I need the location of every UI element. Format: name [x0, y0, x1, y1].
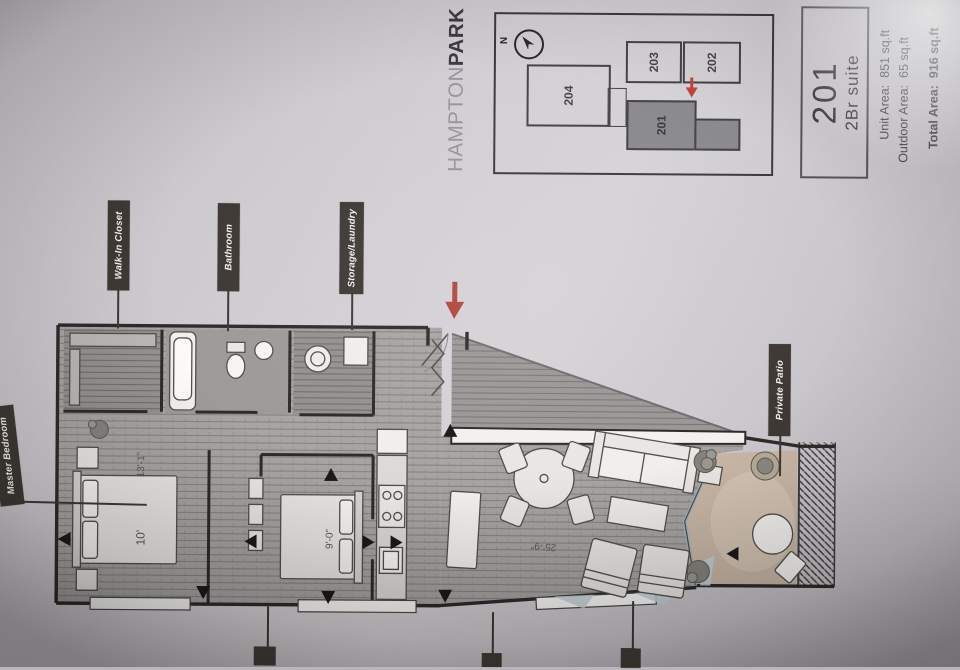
- master-bed-pillow: [83, 480, 98, 517]
- toilet: [227, 354, 245, 378]
- bedroom2-pillow: [340, 500, 353, 534]
- outdoor-area-row: Outdoor Area: 65 sq.ft: [894, 11, 914, 181]
- washer: [305, 346, 331, 372]
- lounge-chair: [637, 544, 690, 598]
- area-summary: Unit Area: 851 sq.ft Outdoor Area: 65 sq…: [875, 11, 954, 182]
- leader-cutoff-3: [632, 601, 634, 651]
- patio-table: [752, 514, 792, 554]
- cutoff-label-2: [482, 653, 502, 667]
- leader-private-patio: [779, 432, 781, 476]
- keyplan-entry-marker: [684, 75, 700, 101]
- dim-master-width: 13'-1": [136, 451, 147, 477]
- north-label: N: [499, 37, 510, 44]
- keyplan-unit-203: 203: [626, 41, 682, 83]
- closet-shelf: [70, 333, 156, 347]
- label-bathroom: Bathroom: [217, 203, 240, 291]
- leader-storage-laundry: [351, 292, 353, 330]
- dim-bedroom2-bed: 9'-0": [324, 529, 335, 549]
- nightstand: [77, 447, 98, 468]
- bedroom2-pillow: [339, 539, 352, 573]
- leader-walkin-closet: [117, 288, 119, 328]
- cutoff-label-3: [621, 648, 641, 668]
- brand-hampton: HAMPTON: [444, 66, 469, 172]
- north-compass-icon: [514, 29, 544, 59]
- label-walk-in-closet: Walk-In Closet: [107, 200, 130, 290]
- master-bed-headboard: [72, 471, 81, 567]
- dim-master-bed: 10': [134, 530, 148, 546]
- bedroom2-headboard: [354, 491, 363, 583]
- brand-park: PARK: [445, 8, 469, 67]
- bedroom2-closet: [249, 504, 263, 524]
- toilet-tank: [227, 342, 245, 352]
- nightstand: [76, 569, 97, 590]
- keyplan-corridor: [607, 88, 626, 127]
- leader-cutoff-2: [492, 612, 494, 656]
- keyplan: N 204 203 202 201: [493, 12, 774, 176]
- bedroom2-closet: [249, 478, 263, 498]
- leader-cutoff-1: [267, 607, 269, 651]
- kitchen-island: [446, 491, 480, 569]
- leader-bathroom: [227, 289, 229, 331]
- unit-area-row: Unit Area: 851 sq.ft: [875, 11, 895, 181]
- label-private-patio: Private Patio: [768, 344, 791, 436]
- unit-title-box: 201 2Br suite: [800, 6, 869, 178]
- label-storage-laundry: Storage/Laundry: [339, 202, 364, 294]
- entry-arrow: [445, 282, 464, 319]
- unit-type: 2Br suite: [842, 54, 863, 130]
- bathroom-sink: [255, 341, 273, 359]
- keyplan-unit-201-highlighted: [694, 118, 740, 150]
- keyplan-unit-201-highlighted: 201: [626, 100, 696, 150]
- brand-logo: HAMPTONPARK: [439, 18, 474, 172]
- closet-shelf: [69, 349, 79, 405]
- laundry-shelf: [344, 337, 368, 365]
- cutoff-label-1: [254, 646, 276, 665]
- unit-number: 201: [807, 60, 840, 124]
- master-bed-pillow: [82, 521, 97, 558]
- fridge: [377, 429, 407, 453]
- keyplan-unit-204: 204: [526, 64, 610, 127]
- stove: [379, 485, 405, 527]
- total-area-row: Total Area: 916 sq.ft: [924, 11, 944, 181]
- photographed-floorplan-page: 13'-1" 10' 9'-0" 25'-9" Walk-In Closet B…: [0, 0, 960, 667]
